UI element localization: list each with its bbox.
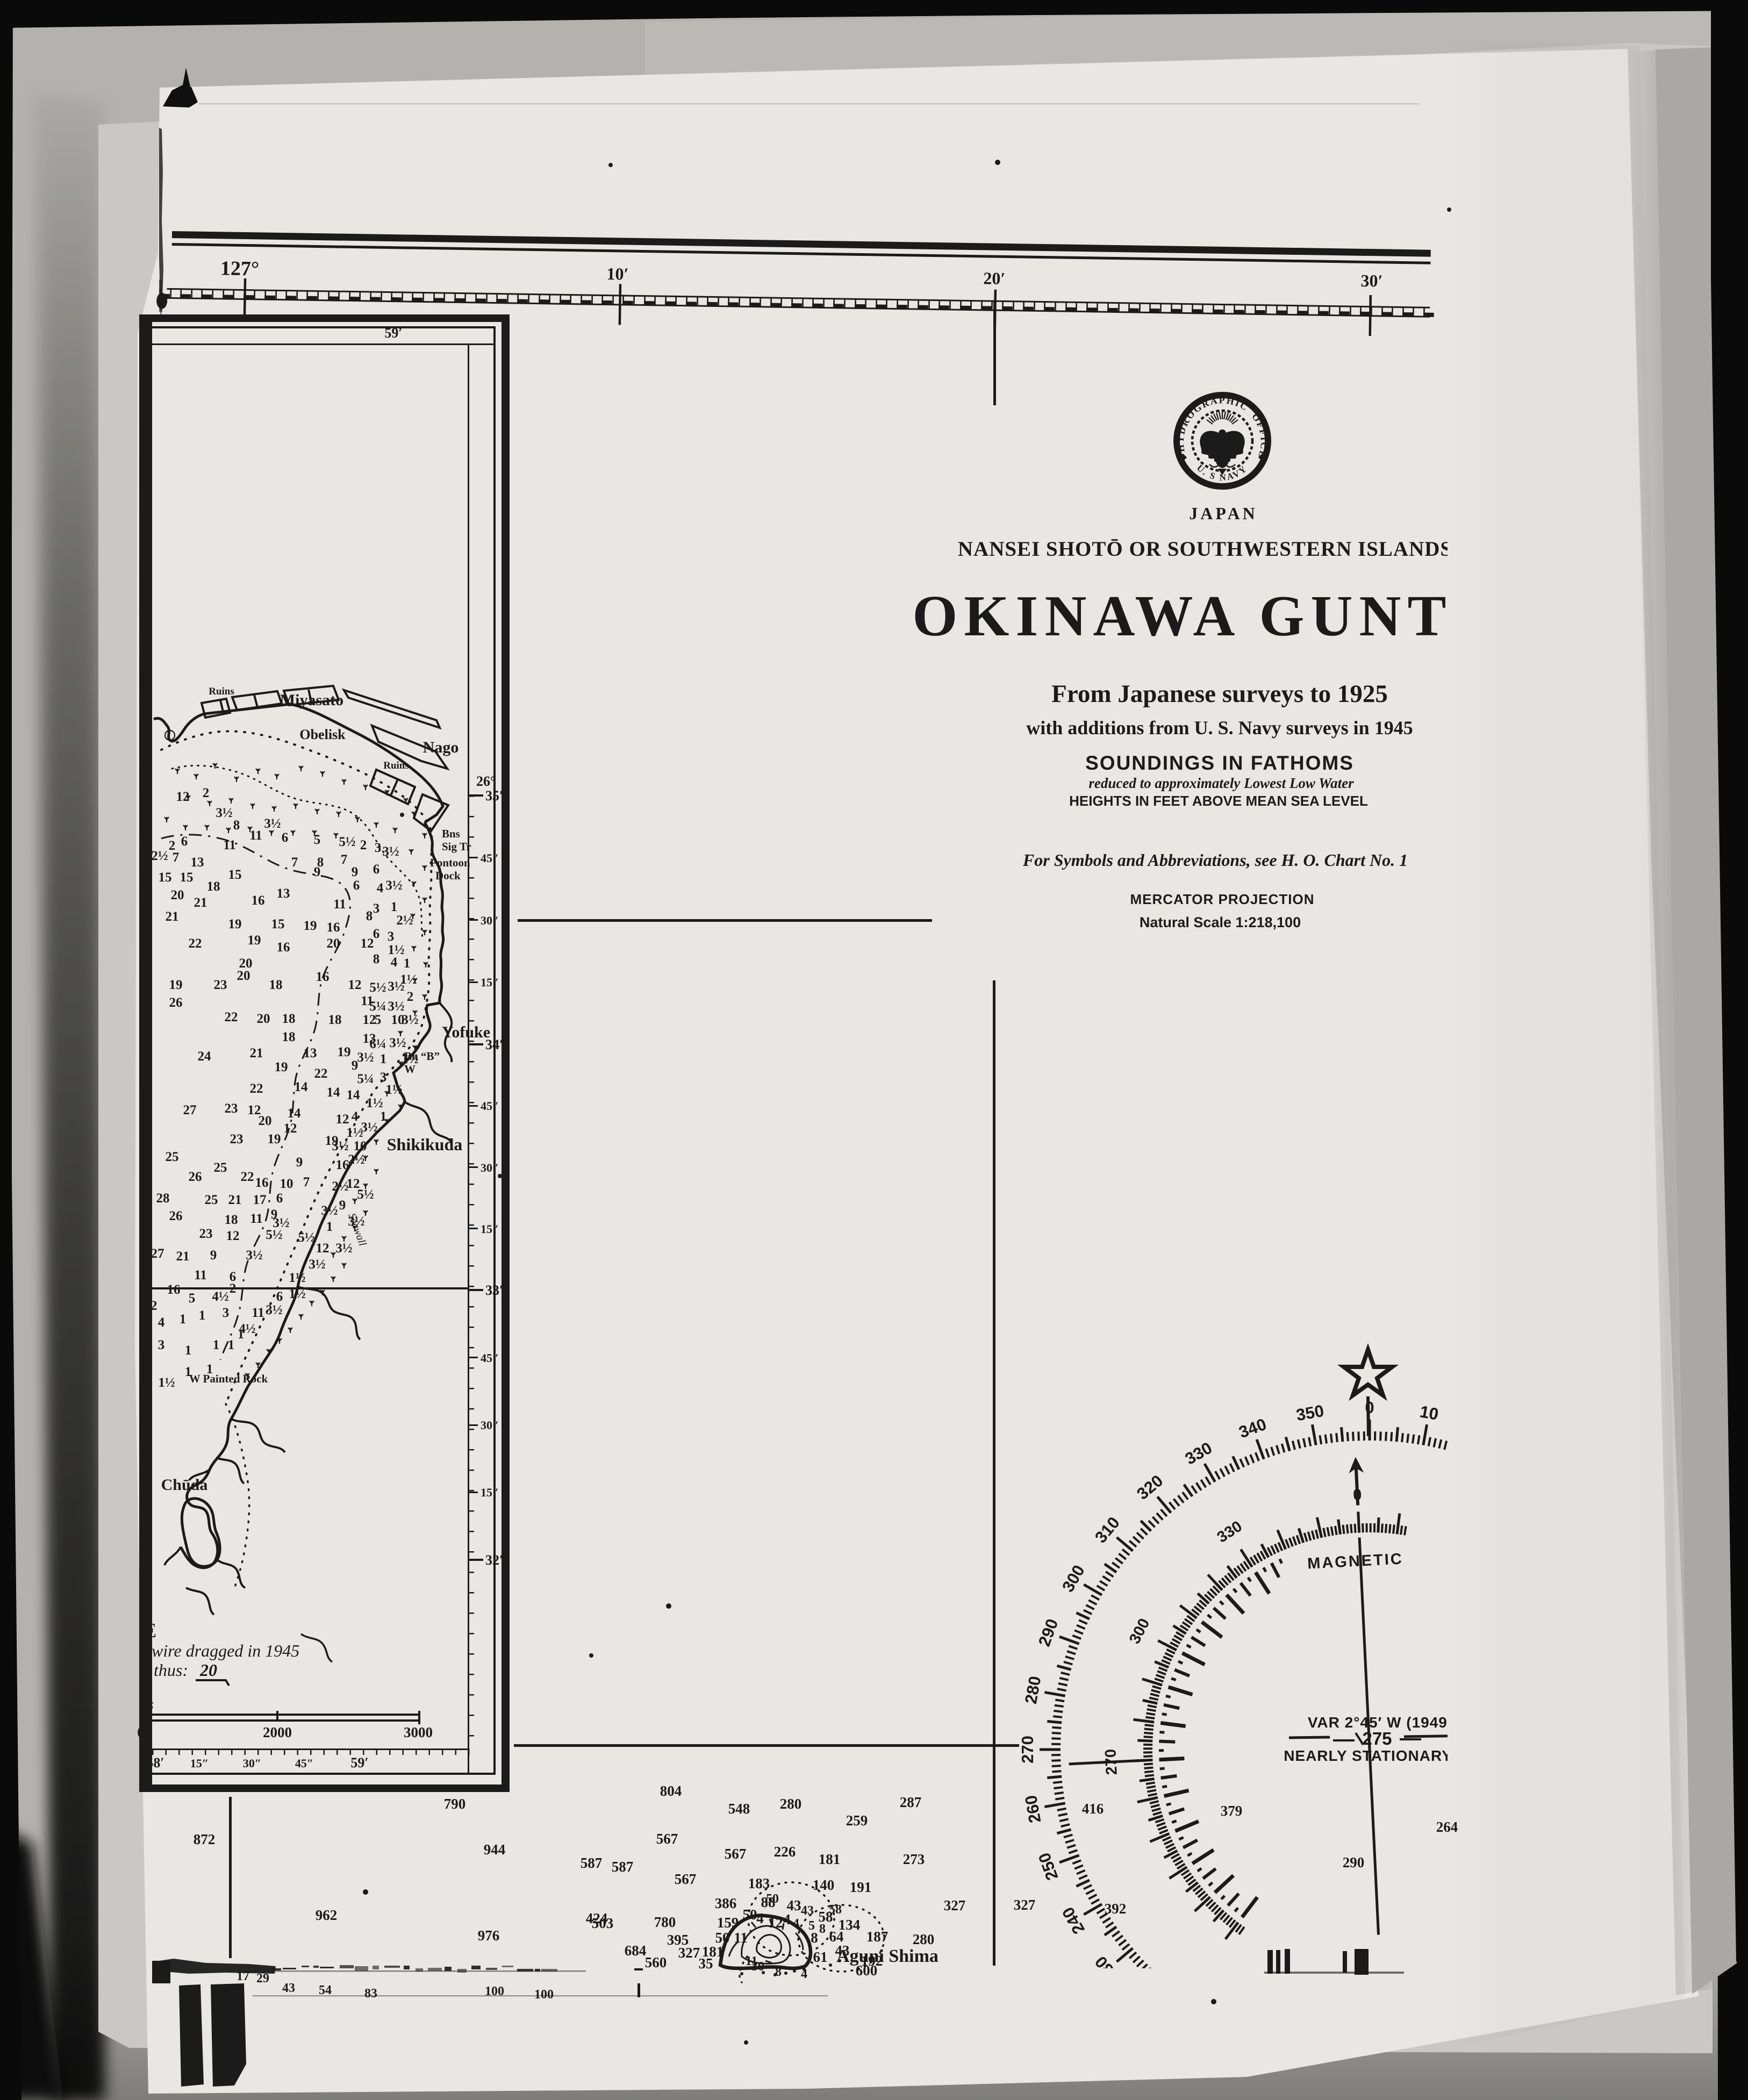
svg-text:4: 4	[793, 1917, 799, 1931]
svg-text:13: 13	[277, 886, 290, 901]
svg-text:20: 20	[199, 1660, 217, 1680]
svg-text:18: 18	[328, 1013, 342, 1027]
svg-text:Chūda: Chūda	[161, 1476, 208, 1494]
svg-text:9: 9	[314, 865, 321, 879]
svg-text:2½: 2½	[348, 1152, 364, 1167]
svg-text:15″: 15″	[481, 976, 499, 989]
svg-text:6: 6	[353, 878, 360, 893]
svg-text:327: 327	[678, 1945, 700, 1961]
svg-text:10′: 10′	[606, 264, 629, 284]
svg-text:58: 58	[829, 1903, 842, 1917]
svg-text:1: 1	[206, 1362, 213, 1377]
svg-text:Bns: Bns	[442, 827, 460, 840]
svg-text:45″: 45″	[481, 1099, 499, 1113]
svg-text:30″: 30″	[481, 1418, 499, 1432]
svg-text:15: 15	[180, 870, 194, 885]
svg-text:2000: 2000	[263, 1724, 292, 1740]
svg-text:26: 26	[169, 995, 183, 1010]
svg-text:17: 17	[237, 1969, 249, 1983]
svg-text:Miyasato: Miyasato	[280, 691, 343, 709]
svg-text:3: 3	[223, 1306, 230, 1320]
svg-text:3½: 3½	[402, 1013, 418, 1027]
svg-text:548: 548	[728, 1801, 750, 1817]
svg-text:with additions from U. S. Navy: with additions from U. S. Navy surveys i…	[1026, 717, 1413, 739]
svg-text:29: 29	[256, 1972, 269, 1986]
svg-text:5¼: 5¼	[357, 1072, 374, 1086]
svg-text:3½: 3½	[264, 816, 281, 831]
svg-text:E: E	[144, 1619, 156, 1642]
svg-text:962: 962	[316, 1907, 338, 1923]
svg-text:35: 35	[699, 1955, 713, 1972]
svg-text:5½: 5½	[357, 1187, 374, 1202]
svg-text:1½: 1½	[289, 1271, 305, 1285]
svg-text:127°: 127°	[220, 257, 260, 280]
svg-text:5: 5	[189, 1291, 196, 1306]
svg-text:327: 327	[1014, 1897, 1036, 1913]
svg-text:6: 6	[276, 1191, 283, 1206]
svg-text:20: 20	[327, 936, 340, 951]
svg-text:9: 9	[210, 1248, 217, 1263]
svg-text:4: 4	[352, 1109, 359, 1124]
svg-text:43: 43	[801, 1904, 814, 1918]
svg-text:20: 20	[237, 969, 250, 983]
svg-text:280: 280	[913, 1931, 935, 1947]
svg-text:From Japanese surveys to 1925: From Japanese surveys to 1925	[1051, 680, 1388, 708]
svg-text:2½: 2½	[151, 849, 168, 863]
svg-text:27: 27	[183, 1103, 197, 1117]
svg-text:273: 273	[903, 1851, 925, 1867]
svg-text:287: 287	[900, 1794, 922, 1810]
svg-text:379: 379	[1221, 1803, 1243, 1819]
svg-text:976: 976	[478, 1927, 500, 1944]
svg-text:20: 20	[171, 888, 184, 902]
svg-text:Ruins: Ruins	[209, 686, 234, 697]
svg-text:MERCATOR PROJECTION: MERCATOR PROJECTION	[1130, 891, 1314, 907]
svg-text:15″: 15″	[481, 1486, 499, 1499]
svg-text:9: 9	[296, 1155, 303, 1170]
svg-text:6: 6	[276, 1289, 283, 1304]
svg-text:16: 16	[316, 970, 329, 984]
svg-text:3½: 3½	[388, 999, 404, 1014]
svg-text:264: 264	[1436, 1819, 1458, 1835]
svg-text:8: 8	[373, 952, 380, 966]
svg-text:12: 12	[361, 936, 374, 951]
svg-text:12: 12	[363, 1013, 376, 1027]
svg-text:19: 19	[228, 917, 242, 931]
svg-text:Yofuke: Yofuke	[442, 1023, 490, 1041]
svg-text:3½: 3½	[335, 1241, 352, 1256]
svg-text:12: 12	[348, 978, 362, 992]
svg-text:15″: 15″	[190, 1757, 209, 1770]
svg-text:reduced to approximately Lowes: reduced to approximately Lowest Low Wate…	[1088, 775, 1354, 791]
svg-text:Sig Tr: Sig Tr	[442, 840, 471, 853]
svg-text:100: 100	[485, 1984, 504, 1998]
svg-text:280: 280	[780, 1796, 802, 1812]
svg-text:28: 28	[156, 1191, 170, 1206]
svg-text:33′: 33′	[485, 1282, 503, 1298]
svg-text:684: 684	[625, 1943, 647, 1959]
svg-text:3½: 3½	[382, 844, 399, 859]
svg-text:560: 560	[645, 1954, 667, 1970]
svg-text:5½: 5½	[266, 1228, 282, 1242]
svg-text:3½: 3½	[246, 1248, 262, 1263]
svg-text:W Painted Rock: W Painted Rock	[189, 1372, 268, 1385]
svg-text:18: 18	[225, 1213, 238, 1227]
svg-text:3½: 3½	[309, 1257, 325, 1272]
svg-text:1½: 1½	[158, 1375, 175, 1390]
svg-text:21: 21	[176, 1249, 190, 1264]
svg-text:16: 16	[255, 1176, 269, 1190]
svg-text:83: 83	[364, 1987, 377, 2001]
svg-text:18: 18	[282, 1030, 296, 1044]
svg-text:16: 16	[336, 1158, 349, 1172]
svg-text:567: 567	[656, 1831, 678, 1847]
svg-text:wire dragged in 1945: wire dragged in 1945	[152, 1641, 299, 1660]
svg-text:4: 4	[158, 1315, 165, 1330]
svg-text:3½: 3½	[388, 979, 404, 994]
svg-text:4: 4	[391, 955, 398, 970]
svg-text:6: 6	[181, 834, 188, 849]
svg-text:35′: 35′	[485, 788, 503, 804]
svg-text:54: 54	[319, 1983, 332, 1997]
svg-text:3½: 3½	[361, 1120, 377, 1135]
svg-text:327: 327	[944, 1897, 966, 1913]
svg-text:26°: 26°	[476, 773, 496, 789]
svg-text:18: 18	[282, 1012, 296, 1026]
svg-text:226: 226	[774, 1844, 796, 1860]
svg-text:d thus:: d thus:	[141, 1660, 188, 1680]
svg-text:1½: 1½	[289, 1287, 305, 1301]
svg-text:3½: 3½	[357, 1050, 374, 1065]
svg-text:4: 4	[377, 881, 384, 895]
svg-text:Dock: Dock	[435, 869, 461, 882]
svg-text:20: 20	[259, 1114, 272, 1128]
svg-text:10: 10	[280, 1177, 293, 1191]
svg-text:424: 424	[586, 1910, 608, 1926]
svg-text:11: 11	[249, 828, 262, 843]
svg-text:4½: 4½	[212, 1289, 228, 1304]
svg-text:1½: 1½	[402, 1052, 418, 1066]
svg-text:5½: 5½	[298, 1230, 314, 1245]
svg-text:45″: 45″	[295, 1757, 313, 1770]
svg-text:Ruins: Ruins	[383, 760, 409, 771]
svg-text:3: 3	[388, 929, 395, 944]
svg-text:23: 23	[225, 1101, 238, 1116]
svg-text:5½: 5½	[339, 835, 355, 849]
svg-text:14: 14	[327, 1085, 341, 1100]
svg-text:For Symbols and Abbreviations,: For Symbols and Abbreviations, see H. O.…	[1022, 850, 1408, 870]
svg-text:19: 19	[338, 1045, 351, 1059]
svg-text:8: 8	[819, 1922, 826, 1936]
svg-text:1: 1	[391, 900, 398, 914]
svg-text:15: 15	[228, 868, 242, 882]
svg-text:3½: 3½	[266, 1303, 282, 1317]
svg-text:19: 19	[268, 1132, 281, 1146]
svg-text:23: 23	[214, 978, 227, 992]
svg-text:21: 21	[166, 909, 179, 924]
svg-text:22: 22	[241, 1170, 254, 1184]
svg-text:3½: 3½	[385, 878, 402, 893]
svg-text:1: 1	[213, 1338, 220, 1352]
svg-text:12: 12	[284, 1121, 297, 1136]
svg-text:14: 14	[347, 1088, 361, 1102]
svg-text:rs: rs	[142, 1696, 154, 1713]
svg-text:3: 3	[158, 1338, 165, 1352]
svg-text:58′: 58′	[146, 1755, 164, 1771]
svg-text:6¼: 6¼	[369, 1037, 386, 1051]
svg-text:3½: 3½	[332, 1139, 348, 1153]
svg-text:11: 11	[746, 1954, 758, 1968]
svg-text:23: 23	[230, 1132, 243, 1146]
svg-text:270: 270	[1018, 1736, 1037, 1764]
svg-text:15″: 15″	[481, 1222, 499, 1236]
svg-text:10: 10	[354, 1139, 367, 1153]
svg-text:18: 18	[207, 879, 220, 894]
svg-text:1: 1	[199, 1308, 206, 1323]
svg-text:780: 780	[654, 1914, 676, 1930]
svg-text:11: 11	[333, 897, 346, 912]
svg-text:1: 1	[180, 1312, 187, 1327]
svg-text:4: 4	[801, 1967, 807, 1981]
svg-text:5: 5	[375, 1013, 382, 1027]
svg-text:7: 7	[173, 850, 180, 865]
svg-text:567: 567	[725, 1846, 747, 1862]
svg-text:8: 8	[233, 818, 240, 833]
svg-text:12: 12	[316, 1241, 329, 1256]
svg-text:11: 11	[250, 1212, 263, 1226]
svg-text:16: 16	[167, 1282, 181, 1297]
svg-text:4: 4	[756, 1910, 764, 1926]
svg-text:45″: 45″	[481, 851, 499, 865]
svg-text:587: 587	[581, 1855, 603, 1871]
svg-text:14: 14	[295, 1080, 309, 1094]
svg-text:2: 2	[230, 1281, 237, 1296]
svg-text:21: 21	[194, 895, 207, 910]
svg-text:15: 15	[159, 870, 172, 885]
svg-text:NANSEI SHOTŌ OR SOUTHWESTERN I: NANSEI SHOTŌ OR SOUTHWESTERN ISLANDS	[958, 537, 1452, 561]
svg-text:1: 1	[185, 1365, 192, 1379]
svg-text:30″: 30″	[481, 914, 499, 927]
svg-text:20′: 20′	[983, 268, 1006, 288]
svg-text:19: 19	[304, 919, 317, 933]
svg-text:4½: 4½	[239, 1322, 255, 1336]
svg-text:5¼: 5¼	[369, 999, 386, 1014]
svg-text:Pontoon: Pontoon	[430, 856, 470, 869]
svg-text:Nago: Nago	[423, 739, 459, 756]
svg-text:587: 587	[612, 1859, 634, 1875]
svg-text:Aguni Shima: Aguni Shima	[836, 1946, 939, 1966]
svg-text:2: 2	[203, 786, 210, 800]
svg-text:11: 11	[194, 1268, 207, 1282]
svg-text:21: 21	[250, 1046, 263, 1060]
svg-text:181: 181	[819, 1851, 841, 1867]
svg-text:386: 386	[715, 1895, 737, 1911]
svg-text:2½: 2½	[332, 1179, 348, 1194]
svg-text:790: 790	[444, 1796, 466, 1812]
svg-text:2½: 2½	[396, 913, 413, 928]
svg-text:23: 23	[199, 1227, 213, 1241]
svg-text:13: 13	[191, 855, 204, 870]
svg-text:10: 10	[1419, 1402, 1440, 1423]
svg-text:290: 290	[1343, 1854, 1365, 1870]
svg-text:22: 22	[189, 936, 202, 951]
svg-text:22: 22	[250, 1081, 263, 1096]
svg-text:26: 26	[169, 1209, 183, 1223]
svg-text:25: 25	[166, 1150, 179, 1164]
svg-text:275: 275	[1362, 1729, 1392, 1748]
svg-text:3000: 3000	[404, 1724, 433, 1740]
svg-text:19: 19	[169, 978, 183, 992]
svg-text:30′: 30′	[1360, 271, 1383, 291]
svg-text:50: 50	[766, 1892, 779, 1906]
svg-text:19: 19	[248, 933, 261, 948]
svg-text:3½: 3½	[321, 1203, 338, 1218]
svg-text:2: 2	[407, 990, 414, 1004]
svg-text:13: 13	[304, 1046, 317, 1060]
svg-text:SOUNDINGS IN FATHOMS: SOUNDINGS IN FATHOMS	[1085, 752, 1354, 774]
svg-text:17: 17	[253, 1193, 267, 1207]
svg-text:8: 8	[366, 909, 373, 923]
svg-text:25: 25	[205, 1193, 218, 1207]
svg-text:14: 14	[288, 1106, 302, 1121]
svg-text:2: 2	[360, 838, 367, 852]
svg-text:JAPAN: JAPAN	[1189, 504, 1258, 523]
svg-text:30″: 30″	[243, 1757, 261, 1770]
svg-text:392: 392	[1105, 1901, 1127, 1917]
svg-text:27: 27	[151, 1246, 164, 1261]
svg-text:5: 5	[808, 1919, 815, 1933]
svg-text:Natural Scale 1:218,100: Natural Scale 1:218,100	[1140, 914, 1301, 930]
svg-text:24: 24	[198, 1049, 212, 1064]
svg-text:12: 12	[226, 1229, 240, 1243]
svg-text:16: 16	[327, 920, 340, 935]
svg-text:191: 191	[850, 1879, 872, 1895]
svg-text:18: 18	[269, 978, 283, 992]
svg-text:21: 21	[228, 1193, 242, 1207]
svg-text:872: 872	[194, 1831, 216, 1847]
svg-text:Obelisk: Obelisk	[299, 727, 346, 742]
svg-text:12: 12	[336, 1112, 349, 1127]
svg-text:6: 6	[282, 830, 289, 845]
svg-text:567: 567	[675, 1871, 697, 1887]
svg-text:7: 7	[291, 855, 298, 870]
svg-text:3: 3	[375, 841, 382, 855]
svg-text:25: 25	[214, 1160, 227, 1175]
svg-text:NEARLY STATIONARY: NEARLY STATIONARY	[1284, 1747, 1452, 1764]
svg-text:1½: 1½	[346, 1126, 363, 1140]
svg-text:1½: 1½	[366, 1096, 383, 1110]
svg-text:6: 6	[373, 862, 380, 877]
svg-text:9: 9	[339, 1198, 346, 1213]
svg-text:7: 7	[341, 852, 348, 867]
svg-text:Shikikuda: Shikikuda	[387, 1135, 463, 1154]
svg-text:11: 11	[223, 838, 236, 852]
svg-text:1: 1	[380, 1052, 387, 1066]
svg-text:0: 0	[137, 1724, 145, 1740]
svg-text:12: 12	[144, 1299, 157, 1313]
svg-text:20: 20	[257, 1012, 270, 1026]
svg-text:3½: 3½	[389, 1036, 406, 1050]
svg-text:HEIGHTS IN FEET ABOVE MEAN SEA: HEIGHTS IN FEET ABOVE MEAN SEA LEVEL	[1069, 793, 1368, 809]
svg-text:16: 16	[277, 940, 290, 955]
svg-text:804: 804	[660, 1783, 682, 1799]
svg-text:15: 15	[271, 917, 285, 931]
svg-text:11: 11	[252, 1306, 264, 1320]
svg-text:1: 1	[185, 1343, 192, 1358]
svg-text:5½: 5½	[369, 980, 386, 995]
svg-text:100: 100	[534, 1988, 554, 2002]
svg-text:59′: 59′	[384, 325, 402, 341]
svg-text:1: 1	[404, 956, 411, 971]
svg-text:59′: 59′	[350, 1755, 368, 1771]
svg-text:30″: 30″	[481, 1161, 499, 1174]
svg-text:416: 416	[1082, 1801, 1104, 1817]
svg-text:1: 1	[326, 1220, 333, 1234]
svg-text:259: 259	[846, 1812, 868, 1829]
svg-text:6: 6	[373, 927, 380, 941]
svg-text:45″: 45″	[481, 1351, 499, 1365]
svg-text:140: 140	[813, 1877, 835, 1893]
svg-text:32′: 32′	[485, 1552, 503, 1568]
svg-text:3½: 3½	[216, 806, 232, 820]
svg-text:43: 43	[282, 1981, 295, 1995]
svg-text:19: 19	[275, 1060, 288, 1074]
svg-text:1: 1	[380, 1109, 387, 1124]
svg-text:22: 22	[314, 1066, 328, 1081]
svg-text:22: 22	[225, 1010, 238, 1024]
svg-text:OKINAWA GUNTŌ: OKINAWA GUNTŌ	[912, 584, 1504, 648]
svg-text:16: 16	[252, 893, 265, 908]
svg-text:7: 7	[303, 1175, 310, 1189]
svg-text:26: 26	[189, 1170, 202, 1184]
svg-text:3: 3	[373, 901, 380, 916]
svg-text:61: 61	[813, 1949, 828, 1965]
svg-text:9: 9	[352, 865, 359, 879]
svg-text:1½: 1½	[385, 1083, 402, 1097]
svg-text:944: 944	[484, 1841, 506, 1858]
svg-text:8: 8	[775, 1965, 782, 1979]
svg-text:1: 1	[228, 1338, 235, 1352]
